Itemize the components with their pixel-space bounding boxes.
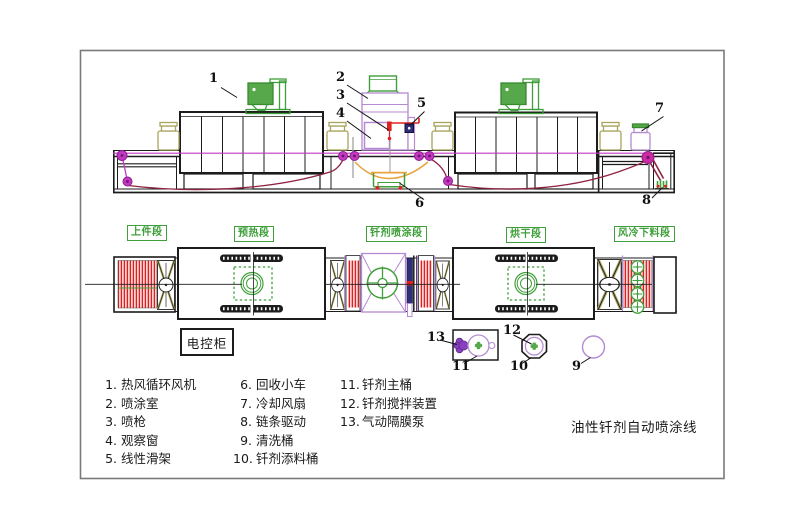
section-label-preheat: 预热段 xyxy=(234,226,274,242)
callout-13: 13 xyxy=(427,330,445,345)
legend-item: 6.回收小车 xyxy=(233,376,319,395)
canister-1 xyxy=(158,123,179,151)
legend-item: 11.钎剂主桶 xyxy=(340,376,437,395)
section-label-aircool-unload: 风冷下料段 xyxy=(614,226,675,242)
flux-main-barrel-assembly xyxy=(453,330,498,360)
cleaning-barrel xyxy=(583,336,605,358)
callout-6: 6 xyxy=(415,196,424,211)
control-cabinet-box: 电控柜 xyxy=(180,328,234,356)
cooling-fan-canister xyxy=(631,124,650,150)
legend-column-2: 6.回收小车 7.冷却风扇 8.链条驱动 9.清洗桶 10.钎剂添料桶 xyxy=(233,376,319,469)
legend-item: 7.冷却风扇 xyxy=(233,395,319,414)
canister-4 xyxy=(600,123,621,151)
legend-item: 10.钎剂添料桶 xyxy=(233,450,319,469)
drawing-sheet: 上件段 预热段 钎剂喷涂段 烘干段 风冷下料段 电控柜 1 2 3 4 5 6 … xyxy=(0,0,800,519)
callout-8: 8 xyxy=(642,193,651,208)
spray-section-plan xyxy=(362,254,417,317)
legend-column-3: 11.钎剂主桶 12.钎剂搅拌装置 13.气动隔膜泵 xyxy=(340,376,437,432)
legend-item: 1.热风循环风机 xyxy=(98,376,196,395)
section-label-drying: 烘干段 xyxy=(506,227,546,243)
drying-oven-plan xyxy=(453,248,594,319)
diagram-title: 油性钎剂自动喷涂线 xyxy=(571,416,697,436)
observation-window xyxy=(365,123,390,149)
legend-item: 12.钎剂搅拌装置 xyxy=(340,395,437,414)
legend-item: 5.线性滑架 xyxy=(98,450,196,469)
callout-3: 3 xyxy=(336,88,345,103)
section-label-flux-spray: 钎剂喷涂段 xyxy=(366,226,427,242)
callout-11: 11 xyxy=(452,359,470,374)
legend-item: 13.气动隔膜泵 xyxy=(340,413,437,432)
canister-2 xyxy=(327,123,348,151)
callout-7: 7 xyxy=(655,101,664,116)
preheat-oven-plan xyxy=(178,248,325,319)
callout-4: 4 xyxy=(336,106,345,121)
flux-feed-barrel-assembly xyxy=(522,335,547,359)
legend-item: 4.观察窗 xyxy=(98,432,196,451)
callout-5: 5 xyxy=(417,96,426,111)
callout-2: 2 xyxy=(336,70,345,85)
callout-9: 9 xyxy=(572,359,581,374)
section-label-loading: 上件段 xyxy=(127,225,167,241)
legend-item: 2.喷涂室 xyxy=(98,395,196,414)
canister-3 xyxy=(432,123,453,151)
callout-10: 10 xyxy=(510,359,528,374)
legend-item: 3.喷枪 xyxy=(98,413,196,432)
legend-item: 8.链条驱动 xyxy=(233,413,319,432)
legend-item: 9.清洗桶 xyxy=(233,432,319,451)
callout-12: 12 xyxy=(503,323,521,338)
callout-1: 1 xyxy=(209,71,218,86)
plan-view xyxy=(85,248,677,319)
legend-column-1: 1.热风循环风机 2.喷涂室 3.喷枪 4.观察窗 5.线性滑架 xyxy=(98,376,196,469)
